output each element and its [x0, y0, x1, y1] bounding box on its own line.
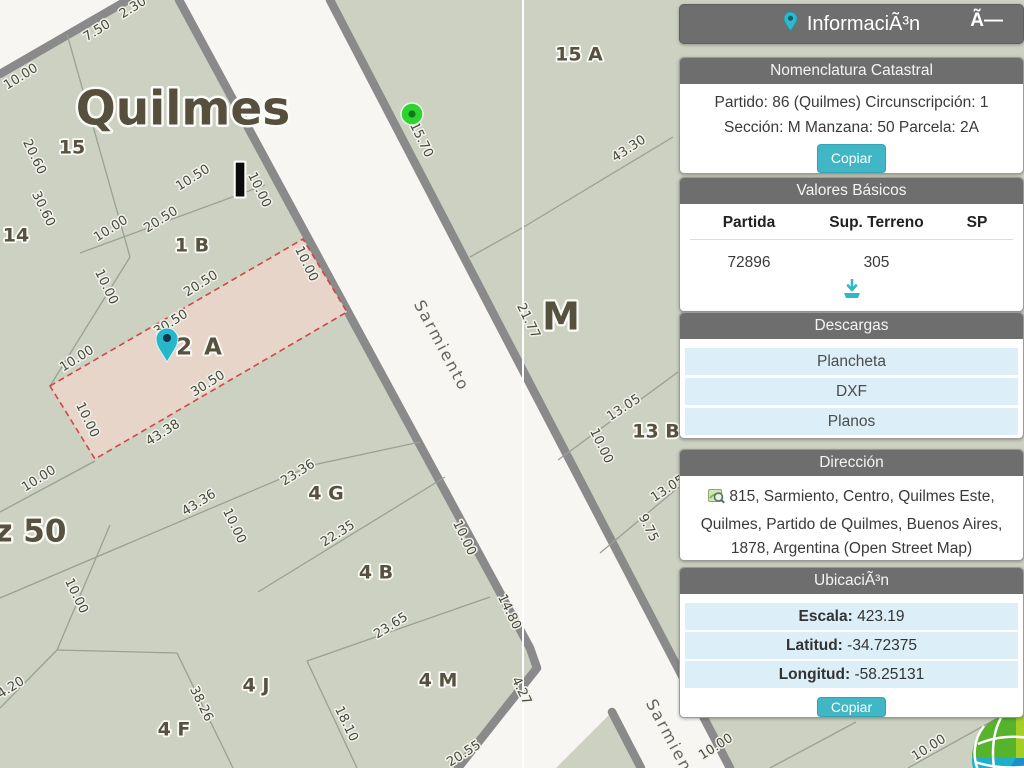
nomenclatura-line1: Partido: 86 (Quilmes) Circunscripción: 1 [686, 90, 1017, 115]
direccion-address: 815, Sarmiento, Centro, Quilmes Este, Qu… [701, 488, 1003, 557]
col-sp: SP [945, 214, 1009, 232]
cadastral-map-app: 2.307.5010.0020.6030.6010.5010.0020.5010… [0, 0, 1024, 768]
parcel-label: 4 M [419, 670, 458, 692]
valores-panel: Valores Básicos Partida Sup. Terreno SP … [679, 177, 1024, 312]
nomenclatura-line2: Sección: M Manzana: 50 Parcela: 2A [686, 115, 1017, 140]
parcel-label: 4 B [359, 562, 393, 584]
parcel-label: Quilmes [76, 82, 290, 137]
direccion-header: Dirección [680, 450, 1023, 477]
valores-header: Valores Básicos [680, 178, 1023, 205]
valores-table-head: Partida Sup. Terreno SP [680, 205, 1023, 232]
parcel-label: 1 B [175, 235, 209, 257]
parcel-label: 14 [3, 225, 29, 247]
descargas-panel: Descargas Plancheta DXF Planos [679, 312, 1024, 439]
partida-value: 72896 [690, 254, 808, 272]
parcel-label: 15 A [555, 44, 603, 66]
sp-value [945, 254, 1009, 272]
escala-row: Escala: 423.19 [685, 603, 1018, 630]
parcel-label: 15 [59, 137, 85, 159]
parcel-label: Mz 50 [0, 514, 66, 550]
direccion-panel: Dirección 815, Sarmiento, Centro, Quilme… [679, 449, 1024, 561]
nomenclatura-panel: Nomenclatura Catastral Partido: 86 (Quil… [679, 57, 1024, 174]
ubicacion-body: Escala: 423.19 Latitud: -34.72375 Longit… [680, 595, 1023, 718]
ubicacion-header: UbicaciÃ³n [680, 568, 1023, 595]
copy-nomenclatura-button[interactable]: Copiar [817, 144, 886, 173]
download-dxf-button[interactable]: DXF [685, 378, 1018, 405]
parcel-label: 4 F [158, 719, 191, 741]
download-icon[interactable] [680, 279, 1023, 304]
nomenclatura-header: Nomenclatura Catastral [680, 58, 1023, 85]
col-sup-terreno: Sup. Terreno [808, 214, 945, 232]
col-partida: Partida [690, 214, 808, 232]
nomenclatura-body: Partido: 86 (Quilmes) Circunscripción: 1… [680, 85, 1023, 173]
close-icon[interactable]: Ã— [970, 10, 1003, 32]
longitud-row: Longitud: -58.25131 [685, 661, 1018, 688]
panel-title: InformaciÃ³n [807, 13, 920, 36]
table-divider [690, 239, 1013, 240]
sup-terreno-value: 305 [808, 254, 945, 272]
valores-table-row: 72896 305 [680, 245, 1023, 272]
direccion-body: 815, Sarmiento, Centro, Quilmes Este, Qu… [680, 477, 1023, 561]
latitud-row: Latitud: -34.72375 [685, 632, 1018, 659]
parcel-label: 4 J [243, 675, 270, 697]
descargas-body: Plancheta DXF Planos [680, 340, 1023, 439]
descargas-header: Descargas [680, 313, 1023, 340]
map-pin-icon [783, 11, 798, 38]
parcel-label: M [542, 295, 580, 339]
info-title-bar: InformaciÃ³n Ã— [679, 4, 1024, 44]
info-sidebar: InformaciÃ³n Ã— Nomenclatura Catastral P… [679, 0, 1022, 768]
download-planos-button[interactable]: Planos [685, 408, 1018, 435]
map-search-icon [708, 488, 725, 513]
selected-location-pin-dot [163, 334, 171, 342]
parcel-label: 4 G [308, 483, 343, 505]
parcel-label: I [231, 154, 248, 208]
green-point-marker-dot [408, 110, 415, 117]
parcel-label: 2 A [176, 335, 224, 361]
copy-ubicacion-button[interactable]: Copiar [817, 697, 886, 717]
parcel-label: 13 B [632, 421, 680, 443]
download-plancheta-button[interactable]: Plancheta [685, 348, 1018, 375]
ubicacion-panel: UbicaciÃ³n Escala: 423.19 Latitud: -34.7… [679, 567, 1024, 718]
